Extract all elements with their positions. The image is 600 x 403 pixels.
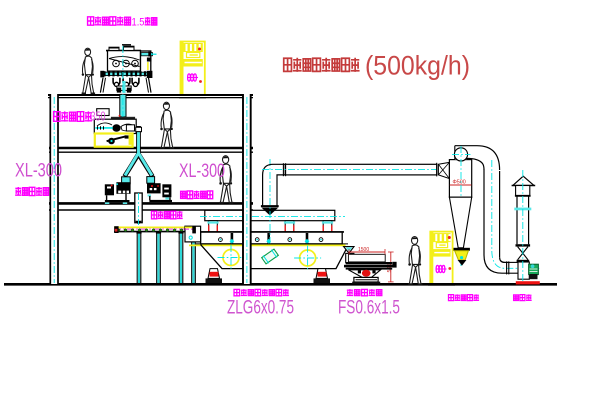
svg-text:XL-300: XL-300	[15, 160, 62, 182]
svg-text:Φ500: Φ500	[453, 180, 466, 186]
svg-text:1500: 1500	[358, 247, 369, 253]
svg-text:ZLG6x0.75: ZLG6x0.75	[227, 298, 294, 319]
svg-text:350: 350	[91, 109, 106, 124]
svg-text:(500kg/h): (500kg/h)	[365, 51, 470, 81]
svg-text:FS0.6x1.5: FS0.6x1.5	[338, 298, 400, 319]
svg-text:1.5: 1.5	[132, 17, 145, 29]
svg-text:XL-300: XL-300	[179, 161, 225, 182]
